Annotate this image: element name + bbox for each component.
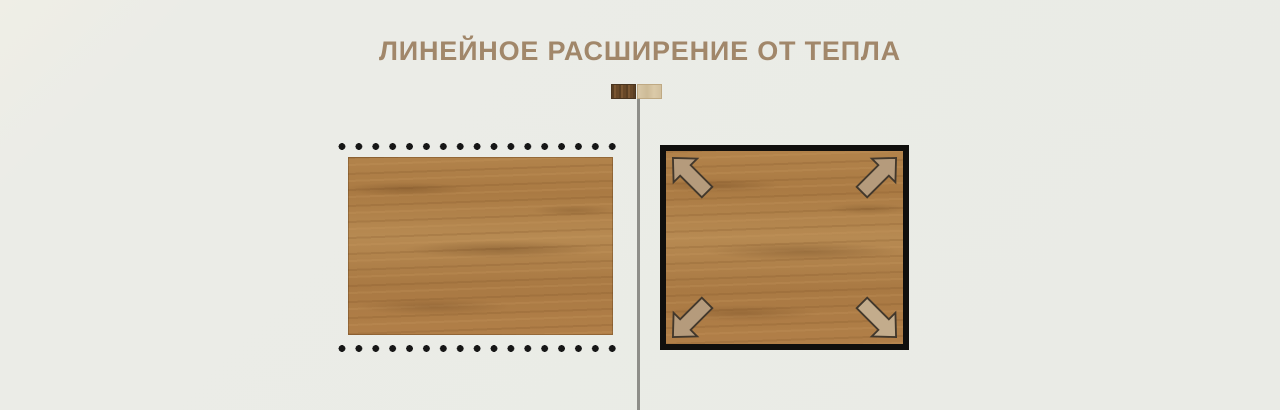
page-title: ЛИНЕЙНОЕ РАСШИРЕНИЕ ОТ ТЕПЛА bbox=[0, 36, 1280, 67]
wood-sample-legend bbox=[611, 84, 662, 99]
dotted-row-bottom bbox=[334, 344, 622, 353]
heat-expansion-infographic: ЛИНЕЙНОЕ РАСШИРЕНИЕ ОТ ТЕПЛА bbox=[0, 0, 1280, 410]
dark-wood-swatch-icon bbox=[611, 84, 636, 99]
dotted-row-top bbox=[334, 142, 622, 151]
light-wood-swatch-icon bbox=[637, 84, 662, 99]
wood-panel-free bbox=[348, 157, 613, 335]
rigid-frame bbox=[660, 145, 909, 350]
vertical-divider bbox=[637, 86, 640, 410]
